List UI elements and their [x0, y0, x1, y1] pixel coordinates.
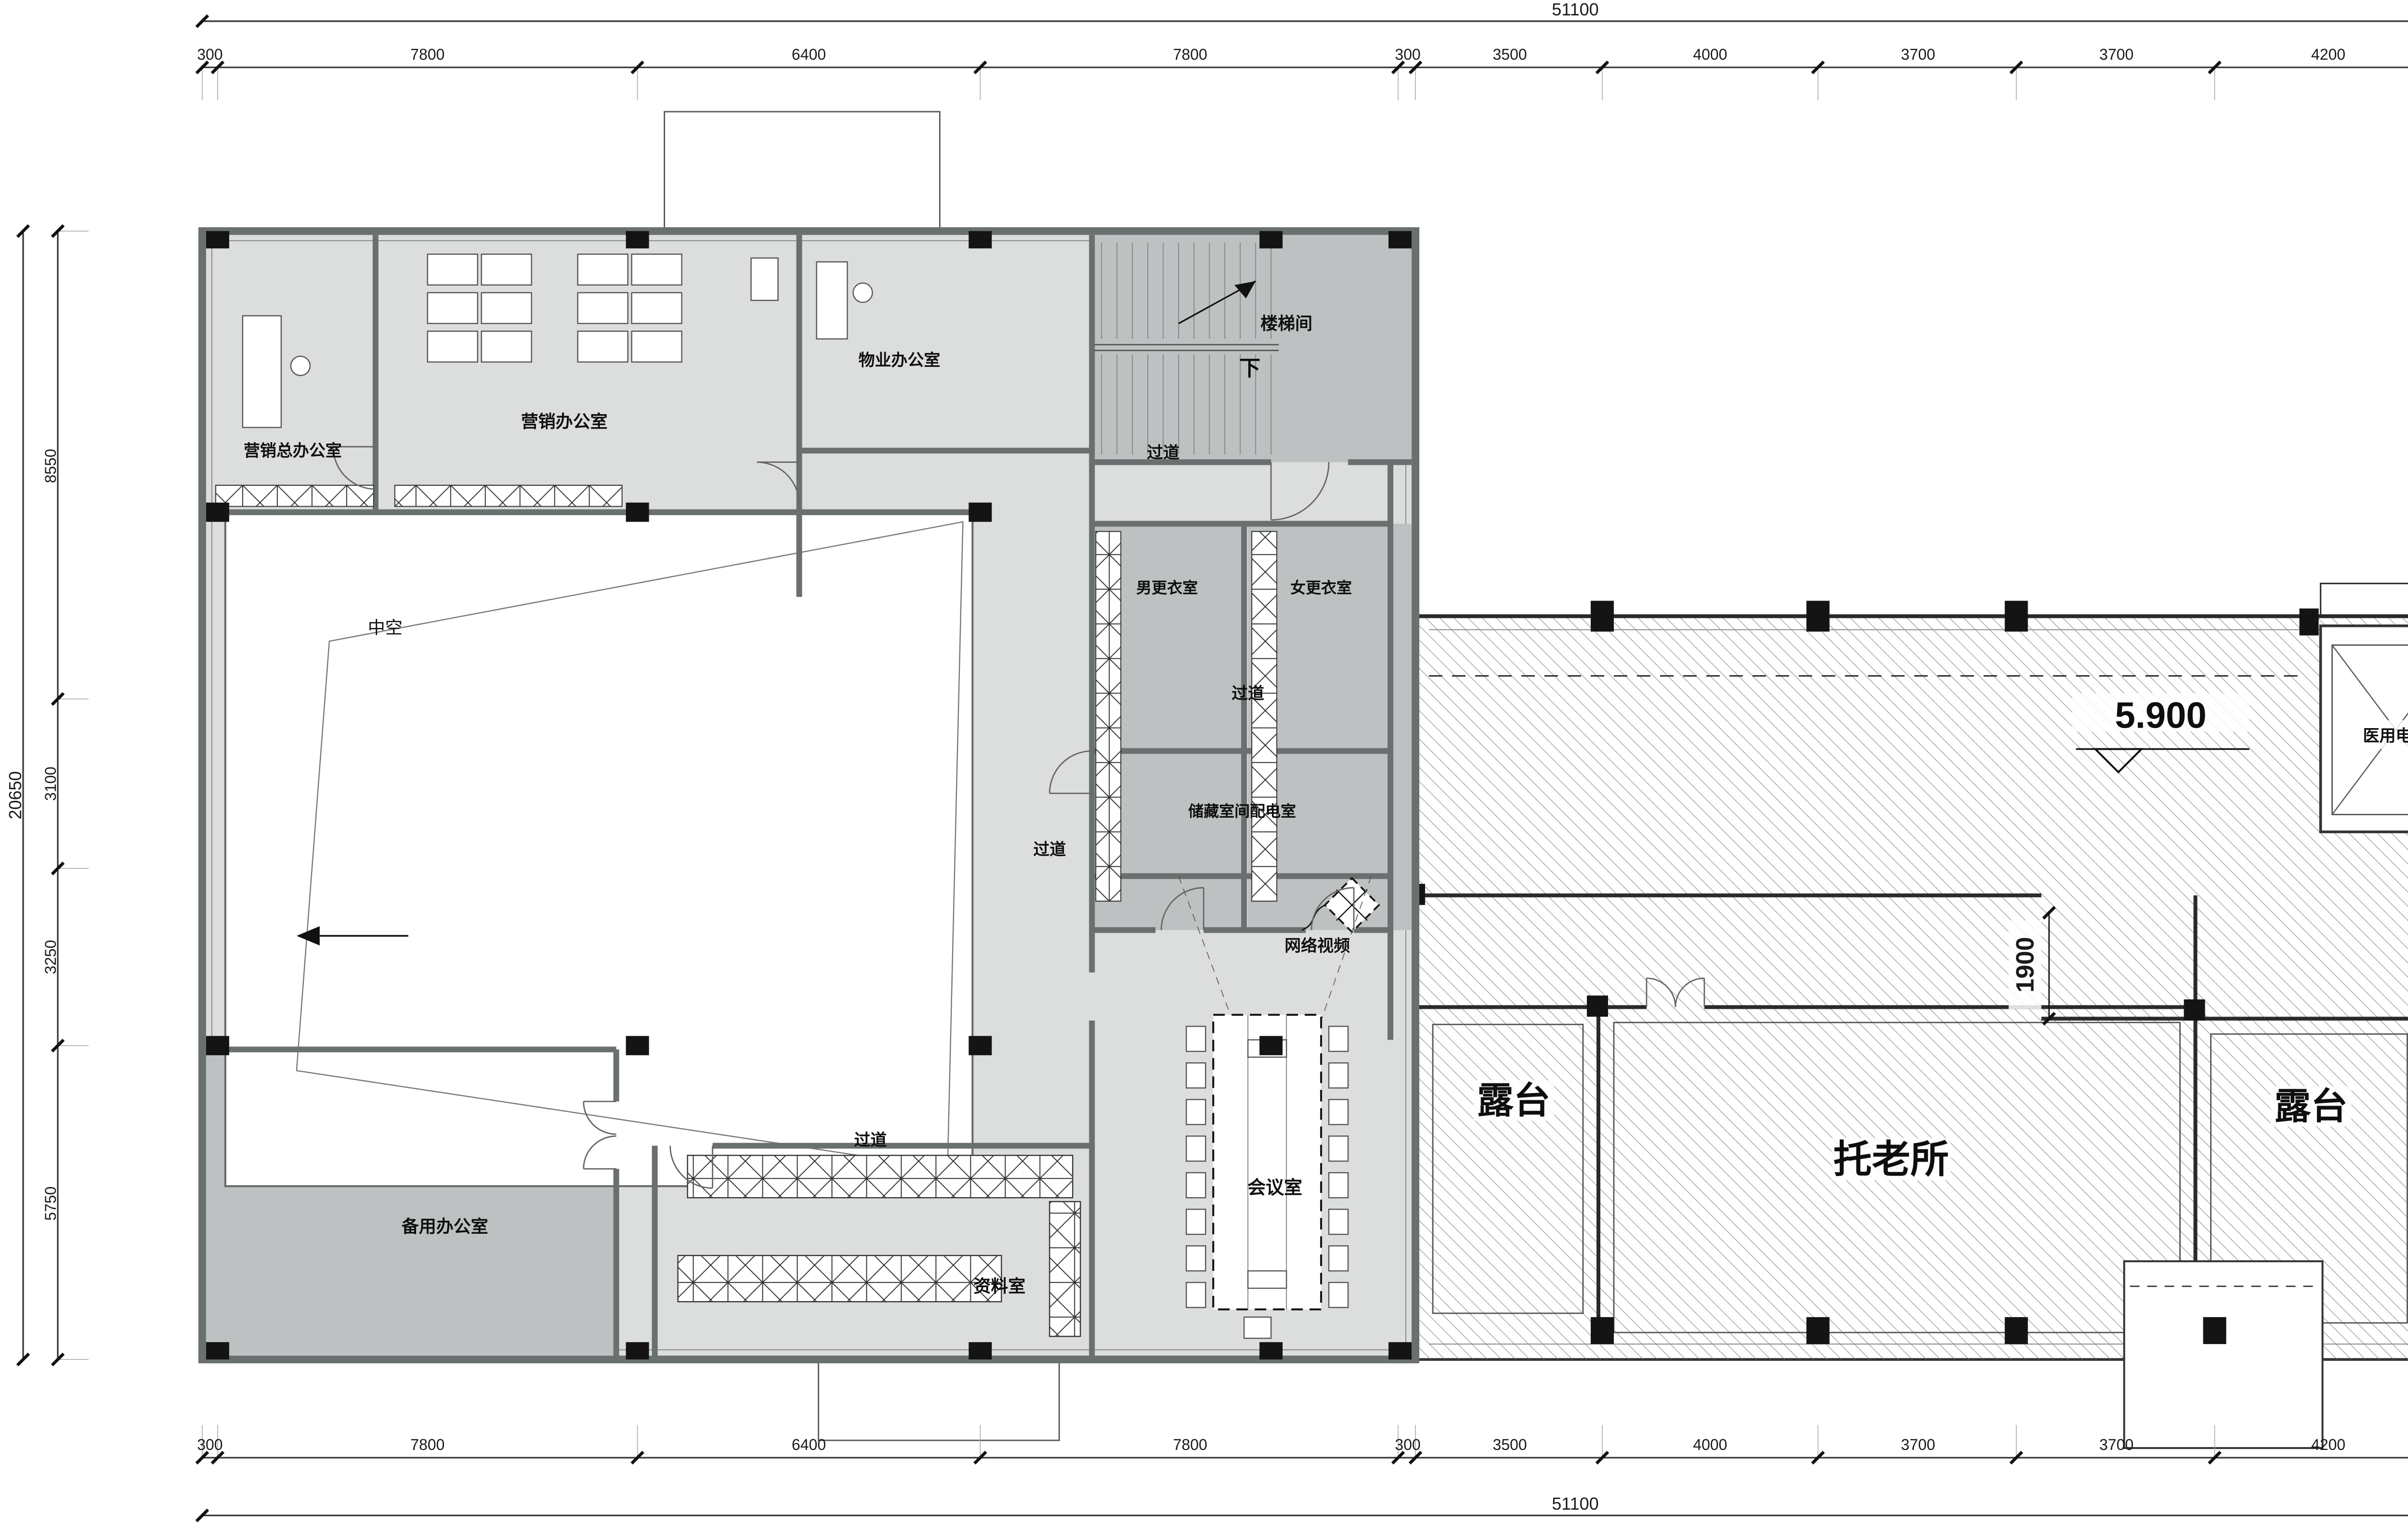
dim-left: 8550 3100 3250 5750 20650 [5, 225, 89, 1365]
atrium-void-label: 中空 [368, 618, 403, 638]
medical-elevator-label: 医用电梯 [2363, 727, 2408, 745]
chair [853, 283, 872, 302]
archive-room-label: 资料室 [973, 1276, 1025, 1296]
bottom-canopy [818, 1359, 1059, 1440]
dim-top-total: 51100 [1552, 0, 1598, 19]
atrium-void-area [225, 514, 973, 1187]
conference-table [1213, 1015, 1321, 1309]
dim-top-9: 4200 [2311, 46, 2345, 63]
meeting-room-label: 会议室 [1247, 1177, 1302, 1198]
left-stair-down-label: 下 [1239, 357, 1260, 380]
archive-shelf-1 [688, 1155, 1073, 1198]
dim-top-4: 300 [1395, 46, 1420, 63]
dim-top-2: 6400 [792, 46, 826, 63]
spare-office-label: 备用办公室 [402, 1216, 488, 1236]
corridor-label-4: 过道 [854, 1131, 887, 1149]
terrace2-label: 露台 [2275, 1086, 2348, 1127]
marketing-director-office-label: 营销总办公室 [244, 442, 342, 460]
floor-plan-canvas: 5.900 1900 露台 露台 露台 托老所 托老所 医用电梯 下 [0, 0, 2408, 1527]
dim-top-6: 4000 [1693, 46, 1727, 63]
womens-lockers [1252, 532, 1277, 901]
elevation-label: 5.900 [2115, 695, 2207, 736]
opening-dim-label: 1900 [2012, 937, 2040, 993]
property-office-label: 物业办公室 [859, 351, 941, 370]
dim-bottom-total: 51100 [1552, 1494, 1598, 1514]
south-porch [2124, 1261, 2323, 1448]
dim-bottom-2: 6400 [792, 1436, 826, 1453]
terrace1-label: 露台 [1477, 1080, 1550, 1121]
dim-bottom: 300 7800 6400 7800 300 3500 4000 3700 37… [196, 1425, 2408, 1521]
dim-left-1: 3100 [42, 767, 59, 801]
mens-changing-label: 男更衣室 [1136, 579, 1198, 597]
chair [291, 356, 310, 376]
dim-top: 300 7800 6400 7800 300 3500 4000 3700 37… [196, 0, 2408, 100]
marketing-office-label: 营销办公室 [521, 412, 608, 431]
cabinet-strip-2 [395, 485, 622, 507]
cabinet-strip-1 [216, 485, 374, 507]
storage-power-label: 储藏室间配电室 [1188, 802, 1296, 820]
dim-bottom-5: 3500 [1492, 1436, 1527, 1453]
floor-plan-svg: 5.900 1900 露台 露台 露台 托老所 托老所 医用电梯 下 [0, 0, 2408, 1527]
dim-top-7: 3700 [1901, 46, 1935, 63]
elderly-care1-label: 托老所 [1833, 1138, 1949, 1181]
dim-top-8: 3700 [2099, 46, 2133, 63]
mens-lockers [1096, 532, 1121, 901]
right-wing-hatch [1415, 616, 2408, 1360]
dim-bottom-9: 4200 [2311, 1436, 2345, 1453]
right-wing: 5.900 1900 露台 露台 露台 托老所 托老所 医用电梯 下 [1390, 584, 2408, 1448]
stairwell-label: 楼梯间 [1260, 313, 1312, 333]
dim-bottom-7: 3700 [1901, 1436, 1935, 1453]
corridor-label-1: 过道 [1147, 444, 1179, 462]
left-wing: 营销总办公室 营销办公室 物业办公室 楼梯间 下 过道 男更衣室 女更衣室 过道… [202, 112, 1415, 1440]
dim-top-0: 300 [197, 46, 222, 63]
elevator-bump [2320, 584, 2408, 616]
dim-top-3: 7800 [1173, 46, 1207, 63]
dim-top-5: 3500 [1492, 46, 1527, 63]
dim-left-2: 3250 [42, 940, 59, 974]
corridor-label-2: 过道 [1231, 685, 1264, 703]
dim-left-3: 5750 [42, 1187, 59, 1221]
network-video-label: 网络视频 [1284, 936, 1350, 955]
womens-changing-label: 女更衣室 [1290, 579, 1352, 597]
stairwell-floor [1092, 235, 1412, 462]
dim-bottom-8: 3700 [2099, 1436, 2133, 1453]
top-canopy [665, 112, 940, 231]
dim-left-0: 8550 [42, 449, 59, 483]
dim-top-1: 7800 [410, 46, 445, 63]
dim-bottom-3: 7800 [1173, 1436, 1207, 1453]
corridor-label-3: 过道 [1033, 840, 1066, 859]
dim-bottom-6: 4000 [1693, 1436, 1727, 1453]
dim-left-total: 20650 [5, 771, 25, 819]
dim-bottom-0: 300 [197, 1436, 222, 1453]
archive-shelf-3 [1049, 1201, 1080, 1336]
dim-bottom-4: 300 [1395, 1436, 1420, 1453]
archive-shelf-2 [678, 1255, 1002, 1302]
dim-bottom-1: 7800 [410, 1436, 445, 1453]
